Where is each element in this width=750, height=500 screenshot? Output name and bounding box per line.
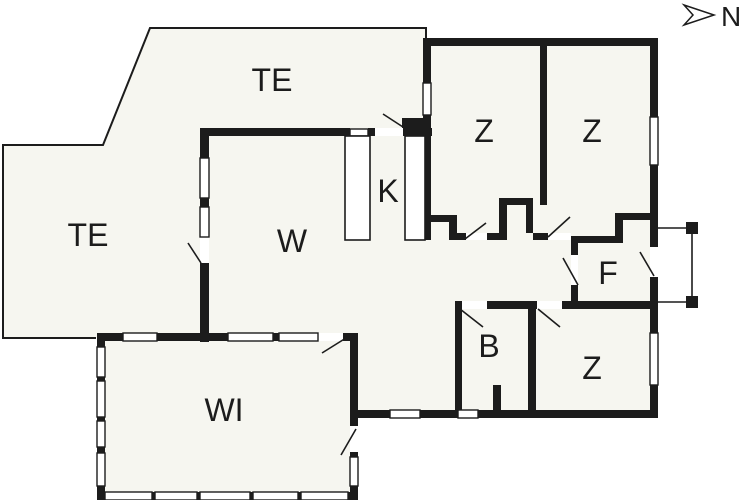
room-label-z2: Z (582, 113, 602, 149)
wall-bottom (478, 410, 658, 418)
wall-z1-west (423, 38, 431, 83)
room-label-te-top: TE (252, 62, 293, 98)
kitchen-counter (345, 136, 370, 240)
wall-wi-east (350, 333, 358, 426)
wall-b-z3-divider (528, 301, 536, 418)
room-label-z3: Z (582, 350, 602, 386)
wall-top (423, 38, 658, 46)
window (97, 381, 105, 417)
door-w-terrace-top (375, 128, 403, 136)
porch-post (686, 296, 698, 308)
wall-wi-top (273, 333, 279, 341)
wall-wi-west (97, 447, 105, 453)
window (200, 207, 209, 237)
wall-z-divider (540, 46, 547, 205)
window (123, 333, 157, 341)
wall-w-top (200, 128, 350, 136)
room-label-f: F (598, 255, 618, 291)
floor-plan: N TE TE W K Z Z Z F B WI (0, 0, 750, 500)
north-arrow-icon (684, 5, 714, 25)
north-label: N (721, 1, 741, 32)
floor-plan-drawing: N TE TE W K Z Z Z F B WI (0, 0, 750, 500)
window (200, 492, 250, 500)
wall-b-stub (493, 385, 501, 418)
window (458, 410, 478, 418)
window (650, 117, 658, 165)
wall-wi-west (97, 333, 105, 347)
window (301, 492, 348, 500)
wall-f-west (571, 243, 578, 255)
wall-east (650, 38, 658, 117)
wall-wi-east (350, 452, 358, 457)
wall-wi-bottom (348, 492, 358, 500)
wall-w-west (200, 263, 209, 342)
room-label-te-left: TE (68, 217, 109, 253)
wall-w-top (368, 128, 375, 136)
window (228, 333, 273, 341)
wall-bottom (420, 410, 458, 418)
window (423, 83, 431, 115)
window (200, 158, 209, 198)
wall-f-top (571, 236, 623, 243)
wall-wi-top (157, 333, 228, 341)
wall-hall (423, 215, 457, 222)
wall-wi-top (343, 333, 357, 341)
north-arrow: N (684, 1, 741, 32)
wall-w-west (200, 198, 209, 207)
room-label-b: B (478, 328, 499, 364)
door-f (571, 255, 578, 285)
room-label-wi: WI (204, 392, 243, 428)
room-label-k: K (377, 173, 398, 209)
window (350, 457, 358, 486)
wall-closet (499, 205, 507, 233)
window (279, 333, 318, 341)
window (155, 492, 197, 500)
door-wi-top (318, 333, 343, 341)
window (650, 333, 658, 385)
door-z3 (537, 301, 562, 309)
window (97, 421, 105, 447)
wall-closet (499, 198, 533, 205)
room-label-z1: Z (474, 113, 494, 149)
door-w-terrace-left (200, 237, 209, 263)
window (350, 129, 368, 136)
room-label-w: W (277, 223, 308, 259)
window (253, 492, 298, 500)
wall-hall (533, 233, 548, 240)
wall-closet (526, 205, 533, 233)
porch-post (686, 222, 698, 234)
door-wi-east (350, 426, 358, 452)
wall-south-mid (562, 301, 658, 309)
window (97, 347, 105, 377)
wall-w-west (200, 128, 209, 158)
entrance-porch (658, 222, 698, 308)
wall-hall (449, 222, 457, 240)
wall-hall (487, 233, 507, 240)
kitchen-counter (405, 136, 425, 240)
door-b (462, 301, 487, 309)
window (390, 410, 420, 418)
wall-wi-bottom (97, 492, 105, 500)
window (105, 492, 152, 500)
wall-hall (457, 233, 466, 240)
wall-east (650, 165, 658, 247)
window (97, 453, 105, 486)
wall-b-west (455, 301, 462, 418)
